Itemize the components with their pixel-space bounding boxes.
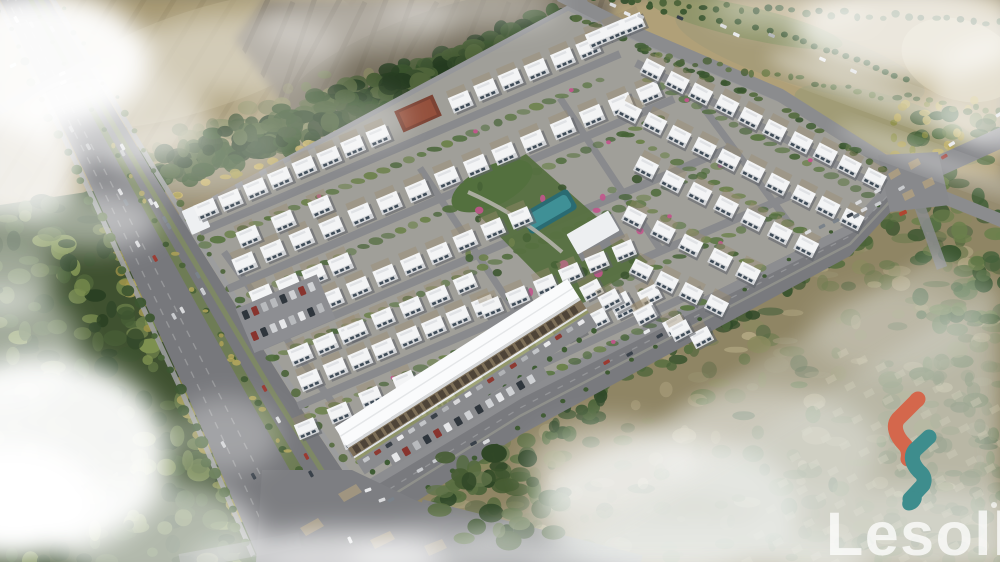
svg-text:Lesoll: Lesoll xyxy=(826,500,1000,562)
